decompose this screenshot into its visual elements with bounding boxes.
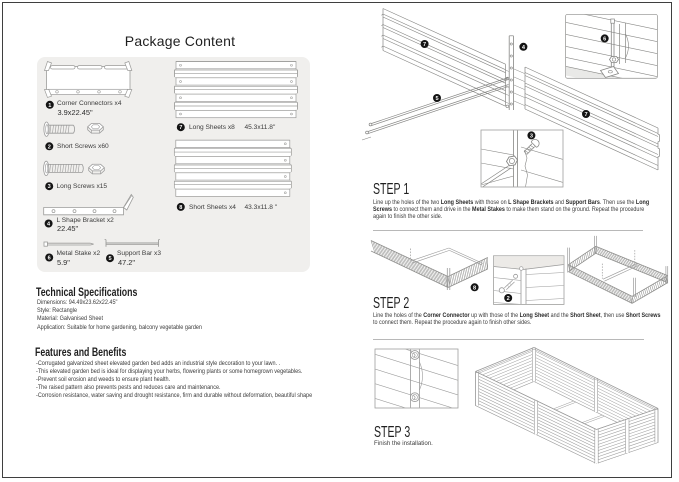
svg-text:7: 7	[584, 112, 587, 118]
svg-text:2: 2	[48, 144, 51, 150]
svg-text:8: 8	[179, 205, 182, 211]
svg-text:5: 5	[108, 256, 111, 262]
svg-text:3: 3	[530, 133, 533, 139]
svg-text:8: 8	[473, 285, 476, 291]
svg-text:2: 2	[507, 296, 510, 302]
svg-text:7: 7	[179, 125, 182, 131]
svg-text:1: 1	[48, 103, 51, 109]
svg-text:3: 3	[48, 184, 51, 190]
svg-text:5: 5	[435, 96, 438, 102]
svg-text:6: 6	[48, 256, 51, 262]
svg-text:6: 6	[603, 36, 606, 42]
svg-text:7: 7	[423, 42, 426, 48]
